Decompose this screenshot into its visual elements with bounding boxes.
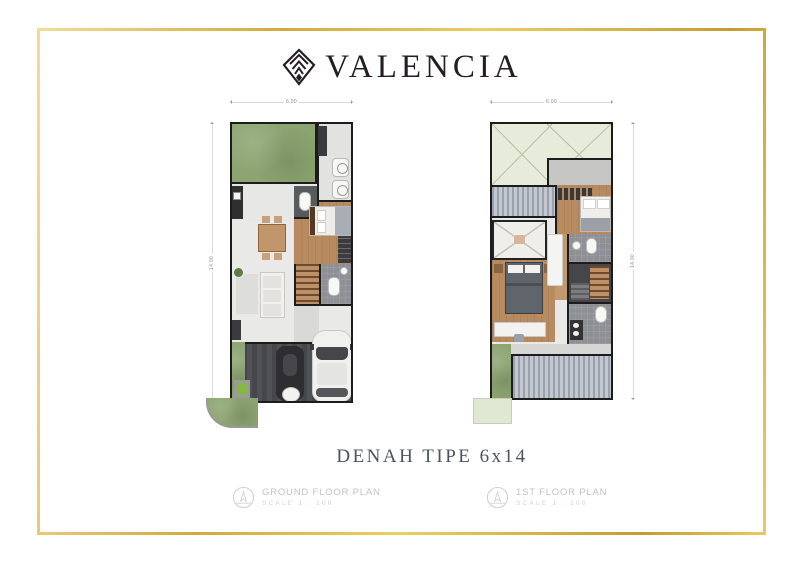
dim-arrow-icon bbox=[631, 398, 635, 400]
dim-arrow-icon bbox=[351, 100, 353, 104]
landscape-curb bbox=[206, 398, 258, 428]
staircase bbox=[567, 264, 611, 302]
staircase bbox=[294, 264, 319, 306]
ground-height-dimension: 14.00 bbox=[208, 122, 216, 403]
valencia-diamond-icon bbox=[282, 48, 316, 86]
ground-height-label: 14.00 bbox=[209, 254, 215, 272]
dim-arrow-icon bbox=[611, 100, 613, 104]
first-floor-plan-body bbox=[490, 122, 613, 400]
first-floor-label: 1ST FLOOR PLAN bbox=[516, 487, 607, 498]
master-bed bbox=[505, 262, 543, 314]
first-width-dimension: 6.00 bbox=[490, 98, 613, 106]
first-width-label: 6.00 bbox=[544, 99, 559, 105]
nightstand bbox=[494, 264, 503, 273]
toilet bbox=[595, 306, 607, 323]
walkway bbox=[511, 344, 611, 354]
kitchen-counter bbox=[232, 186, 243, 219]
dining-table bbox=[258, 224, 286, 252]
dining-chair bbox=[274, 216, 282, 223]
legend-first-floor: 1ST FLOOR PLAN SCALE 1 : 100 bbox=[486, 486, 607, 509]
dining-chair bbox=[274, 253, 282, 260]
sink bbox=[572, 241, 581, 250]
wardrobe bbox=[338, 236, 351, 263]
first-floor-scale: SCALE 1 : 100 bbox=[516, 500, 607, 507]
motorcycle bbox=[276, 346, 304, 401]
linen-cabinet bbox=[547, 234, 563, 286]
desk-chair bbox=[514, 334, 524, 342]
plan-caption: DENAH TIPE 6x14 bbox=[60, 446, 804, 468]
landscape-pad bbox=[473, 398, 512, 424]
compass-stamp-icon bbox=[232, 486, 255, 509]
ground-floor-label: GROUND FLOOR PLAN bbox=[262, 487, 381, 498]
toilet bbox=[328, 277, 340, 296]
legend-ground-floor: GROUND FLOOR PLAN SCALE 1 : 100 bbox=[232, 486, 381, 509]
planter-box bbox=[234, 380, 250, 398]
storage-shelf bbox=[318, 126, 327, 156]
first-height-label: 14.00 bbox=[630, 252, 636, 270]
bed bbox=[580, 196, 611, 232]
shoe-cabinet bbox=[232, 320, 241, 340]
garden-area bbox=[232, 124, 317, 184]
balcony-deck bbox=[492, 185, 555, 218]
kitchen-sink bbox=[233, 192, 241, 200]
brand-name: VALENCIA bbox=[325, 51, 521, 84]
dining-chair bbox=[262, 216, 270, 223]
roof-ledge bbox=[547, 158, 611, 185]
rug bbox=[236, 274, 258, 314]
ground-width-label: 6.00 bbox=[284, 99, 299, 105]
washing-machine bbox=[332, 158, 349, 177]
washing-machine bbox=[332, 180, 349, 199]
car bbox=[312, 330, 352, 402]
carport-roof bbox=[511, 354, 611, 400]
bath-vanity bbox=[570, 320, 583, 340]
compass-stamp-icon bbox=[486, 486, 509, 509]
bed bbox=[309, 206, 353, 236]
first-height-dimension: 14.00 bbox=[629, 122, 637, 400]
sink bbox=[340, 267, 348, 275]
plant bbox=[234, 268, 243, 277]
sofa bbox=[260, 272, 285, 318]
dining-chair bbox=[262, 253, 270, 260]
daybed bbox=[492, 220, 547, 260]
ground-width-dimension: 6.00 bbox=[230, 98, 353, 106]
ground-floor-plan-body bbox=[230, 122, 353, 403]
rear-garden-strip bbox=[492, 344, 511, 400]
brand-logo: VALENCIA bbox=[0, 48, 804, 86]
toilet bbox=[586, 238, 597, 254]
ground-floor-scale: SCALE 1 : 100 bbox=[262, 500, 381, 507]
